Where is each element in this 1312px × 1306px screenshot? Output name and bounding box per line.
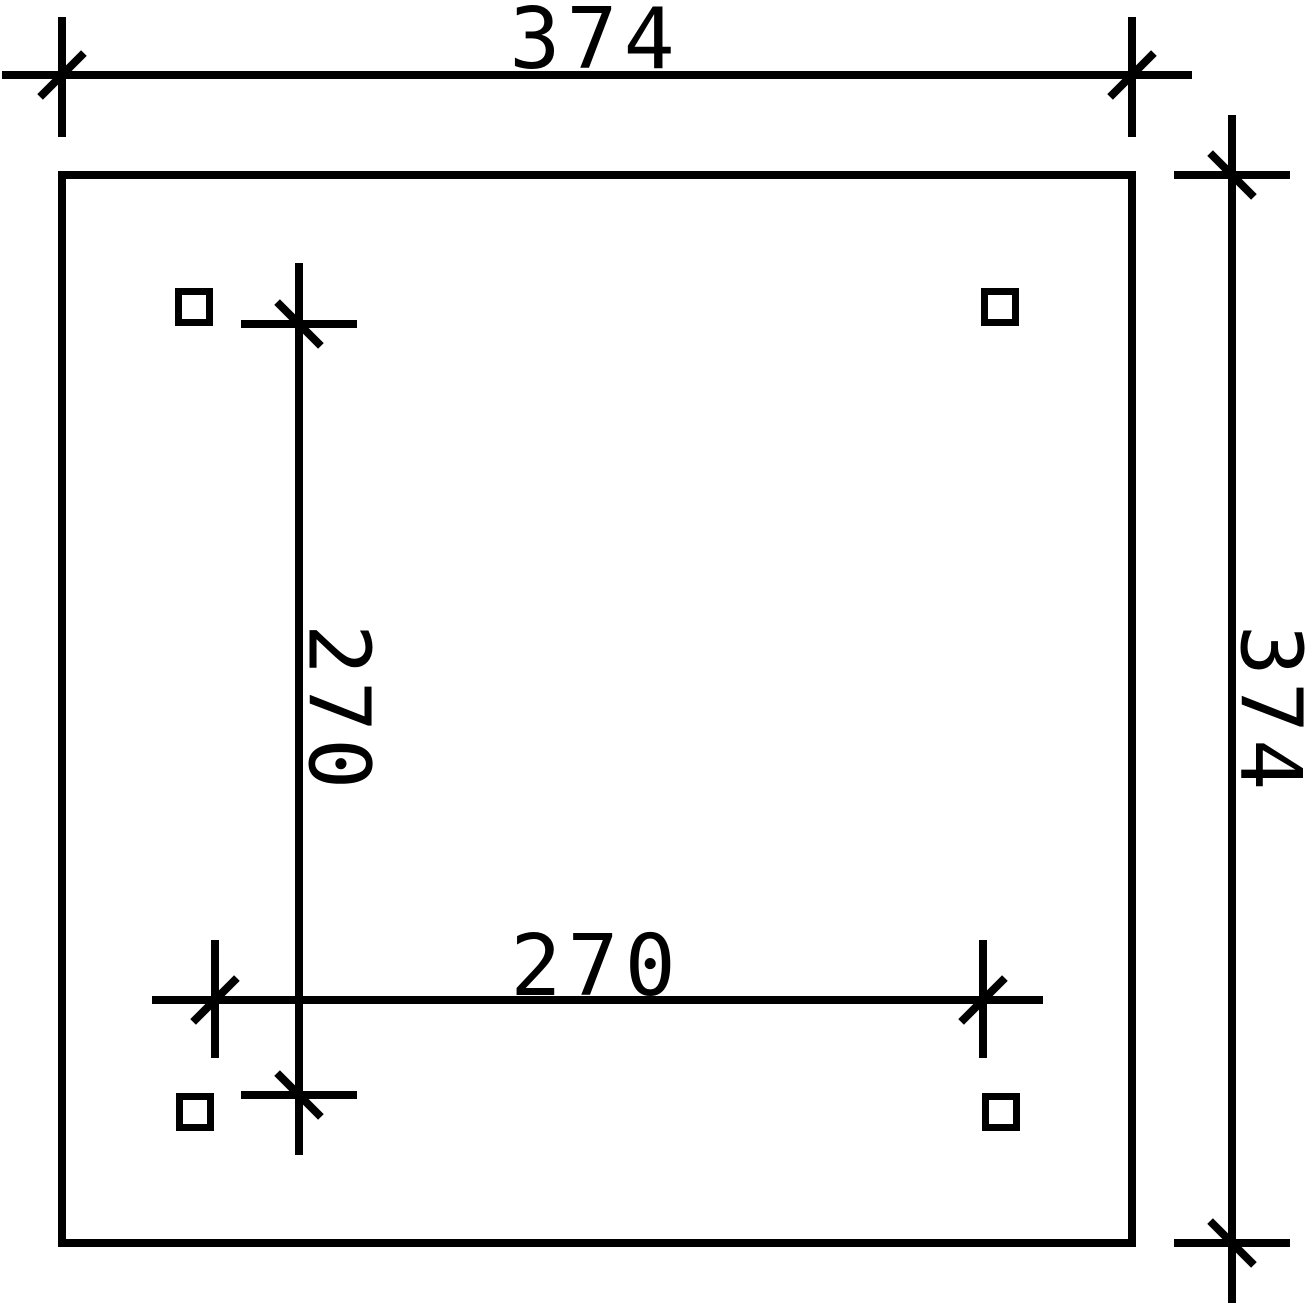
dim-top-label: 374	[455, 0, 735, 82]
post-marker-top-right	[981, 288, 1019, 326]
post-marker-top-left	[175, 288, 213, 326]
dim-inner-vertical-label: 270	[296, 570, 381, 850]
foundation-plan-drawing: 374 374 270 270	[0, 0, 1312, 1306]
post-marker-bottom-left	[176, 1093, 214, 1131]
dim-right-label: 374	[1228, 571, 1312, 851]
dim-inner-horizontal-label: 270	[456, 924, 736, 1009]
plan-outline	[58, 171, 1136, 1247]
post-marker-bottom-right	[982, 1093, 1020, 1131]
